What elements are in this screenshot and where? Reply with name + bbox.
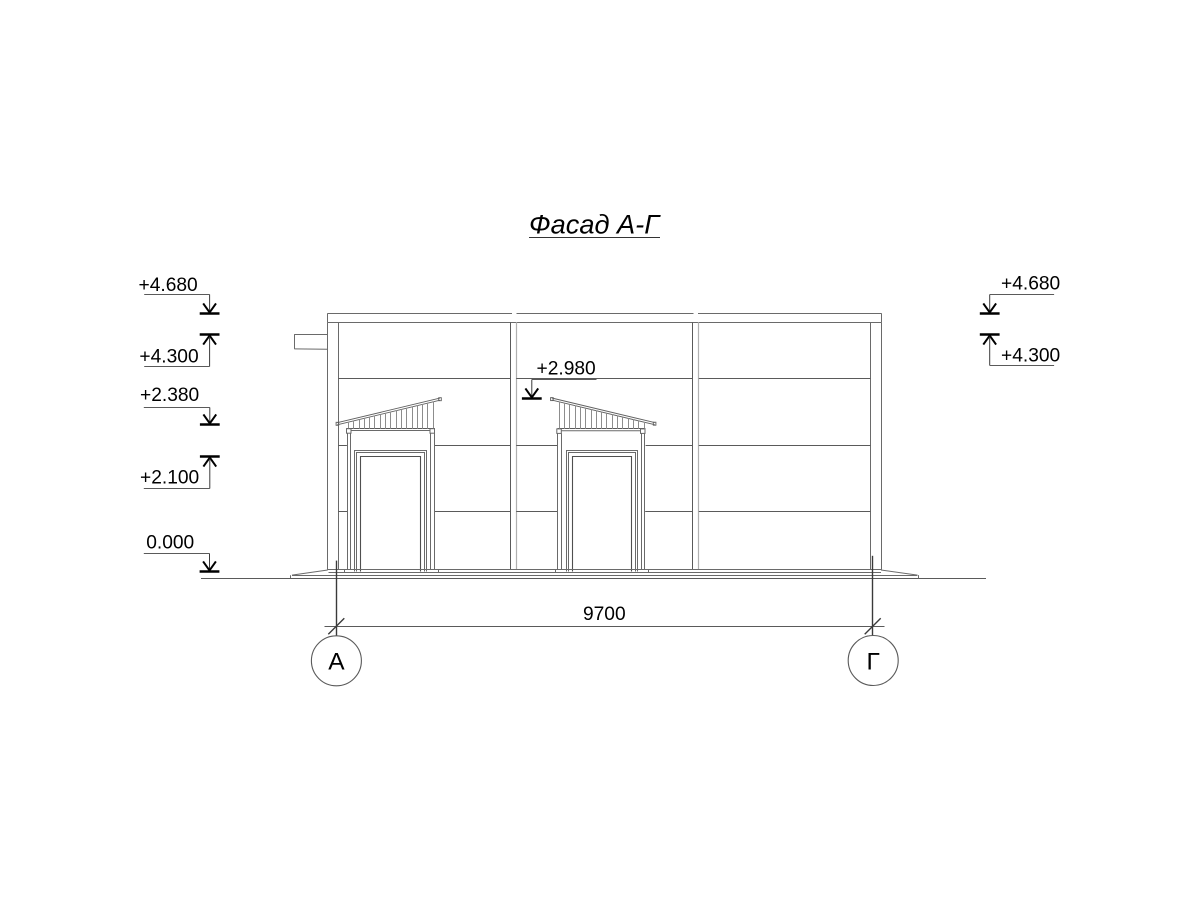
svg-text:+4.680: +4.680 — [1001, 274, 1060, 295]
svg-text:А: А — [328, 649, 345, 676]
svg-text:+2.980: +2.980 — [537, 359, 596, 380]
svg-text:+2.100: +2.100 — [140, 467, 199, 488]
svg-text:Фасад А-Г: Фасад А-Г — [529, 209, 661, 240]
svg-text:+4.300: +4.300 — [139, 347, 198, 368]
svg-text:9700: 9700 — [583, 604, 626, 625]
svg-text:+2.380: +2.380 — [140, 385, 199, 406]
svg-text:Г: Г — [867, 649, 880, 676]
svg-text:0.000: 0.000 — [146, 533, 194, 554]
svg-text:+4.300: +4.300 — [1001, 345, 1060, 366]
svg-text:+4.680: +4.680 — [139, 275, 198, 296]
